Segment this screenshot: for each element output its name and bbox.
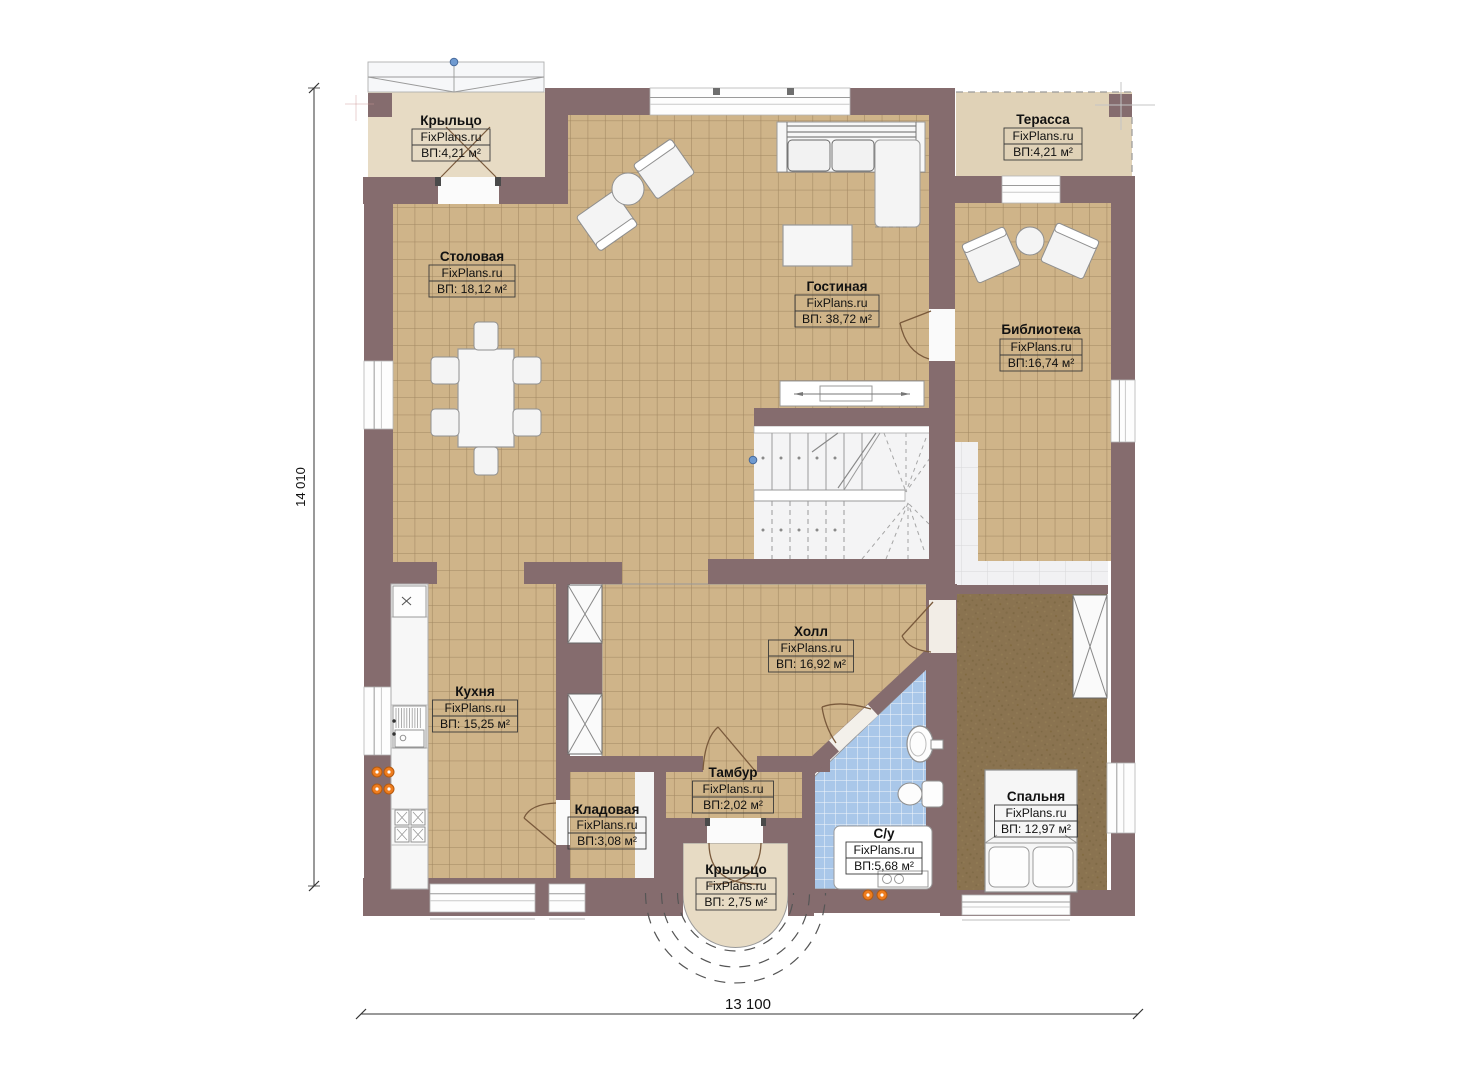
svg-text:13 100: 13 100	[725, 996, 771, 1013]
svg-text:ВП:3,08 м²: ВП:3,08 м²	[577, 834, 637, 848]
svg-text:ВП: 15,25 м²: ВП: 15,25 м²	[440, 717, 510, 731]
svg-text:FixPlans.ru: FixPlans.ru	[1011, 340, 1072, 354]
svg-text:FixPlans.ru: FixPlans.ru	[807, 296, 868, 310]
svg-text:ВП:4,21 м²: ВП:4,21 м²	[1013, 145, 1073, 159]
svg-text:С/у: С/у	[873, 826, 895, 841]
svg-text:Столовая: Столовая	[440, 249, 504, 264]
svg-text:ВП: 2,75 м²: ВП: 2,75 м²	[704, 895, 767, 909]
svg-text:Тамбур: Тамбур	[709, 765, 758, 780]
svg-text:ВП:16,74 м²: ВП:16,74 м²	[1008, 356, 1075, 370]
svg-text:ВП: 18,12 м²: ВП: 18,12 м²	[437, 282, 507, 296]
svg-text:Холл: Холл	[794, 624, 828, 639]
svg-text:Кухня: Кухня	[455, 684, 494, 699]
svg-text:Спальня: Спальня	[1007, 789, 1065, 804]
svg-text:FixPlans.ru: FixPlans.ru	[1006, 806, 1067, 820]
svg-text:FixPlans.ru: FixPlans.ru	[421, 130, 482, 144]
svg-text:ВП: 12,97 м²: ВП: 12,97 м²	[1001, 822, 1071, 836]
svg-text:ВП:5,68 м²: ВП:5,68 м²	[854, 859, 914, 873]
svg-text:FixPlans.ru: FixPlans.ru	[854, 843, 915, 857]
svg-text:Гостиная: Гостиная	[806, 279, 867, 294]
svg-text:FixPlans.ru: FixPlans.ru	[706, 879, 767, 893]
svg-text:Терасса: Терасса	[1016, 112, 1070, 127]
svg-text:FixPlans.ru: FixPlans.ru	[577, 818, 638, 832]
svg-text:FixPlans.ru: FixPlans.ru	[445, 701, 506, 715]
svg-text:Кладовая: Кладовая	[575, 802, 640, 817]
svg-text:Крыльцо: Крыльцо	[705, 862, 766, 877]
svg-text:ВП: 16,92 м²: ВП: 16,92 м²	[776, 657, 846, 671]
svg-text:FixPlans.ru: FixPlans.ru	[781, 641, 842, 655]
svg-text:Библиотека: Библиотека	[1001, 322, 1081, 337]
svg-text:ВП: 38,72 м²: ВП: 38,72 м²	[802, 312, 872, 326]
svg-text:ВП:2,02 м²: ВП:2,02 м²	[703, 798, 763, 812]
svg-text:ВП:4,21 м²: ВП:4,21 м²	[421, 146, 481, 160]
svg-text:FixPlans.ru: FixPlans.ru	[442, 266, 503, 280]
svg-text:Крыльцо: Крыльцо	[420, 113, 481, 128]
svg-text:FixPlans.ru: FixPlans.ru	[703, 782, 764, 796]
svg-text:FixPlans.ru: FixPlans.ru	[1013, 129, 1074, 143]
svg-text:14 010: 14 010	[293, 467, 308, 507]
